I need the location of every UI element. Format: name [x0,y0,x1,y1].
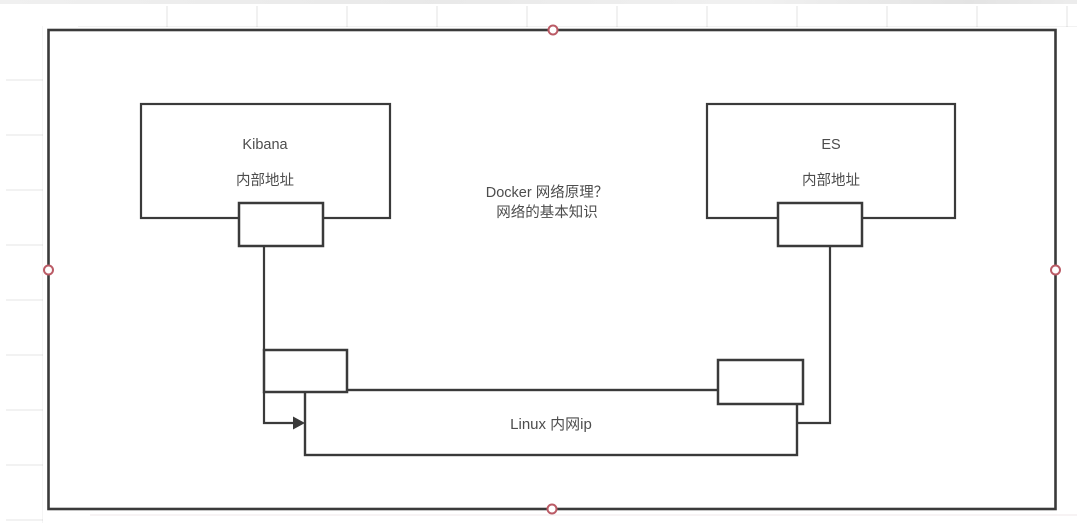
kibana-node-subtitle: 内部地址 [236,172,294,189]
center-note-line2: 网络的基本知识 [496,204,598,221]
right-junction-shape[interactable] [718,360,803,404]
resize-handle-top[interactable] [549,26,558,35]
center-note-line1: Docker 网络原理？ [486,184,608,201]
drawing-canvas[interactable]: Docker 网络原理？ 网络的基本知识 Kibana 内部地址 ES 内部地址… [0,0,1077,523]
kibana-node-title: Kibana [242,137,288,153]
es-port-shape[interactable] [778,203,862,246]
resize-handle-bottom[interactable] [548,505,557,514]
es-node-title: ES [821,137,840,153]
linux-node-label: Linux 内网ip [510,416,592,433]
es-node-shape[interactable] [707,104,955,218]
resize-handle-left[interactable] [44,266,53,275]
kibana-node-shape[interactable] [141,104,390,218]
diagram-svg: Docker 网络原理？ 网络的基本知识 Kibana 内部地址 ES 内部地址… [0,0,1077,523]
left-junction-shape[interactable] [264,350,347,392]
es-node-subtitle: 内部地址 [802,172,860,189]
kibana-port-shape[interactable] [239,203,323,246]
resize-handle-right[interactable] [1051,266,1060,275]
